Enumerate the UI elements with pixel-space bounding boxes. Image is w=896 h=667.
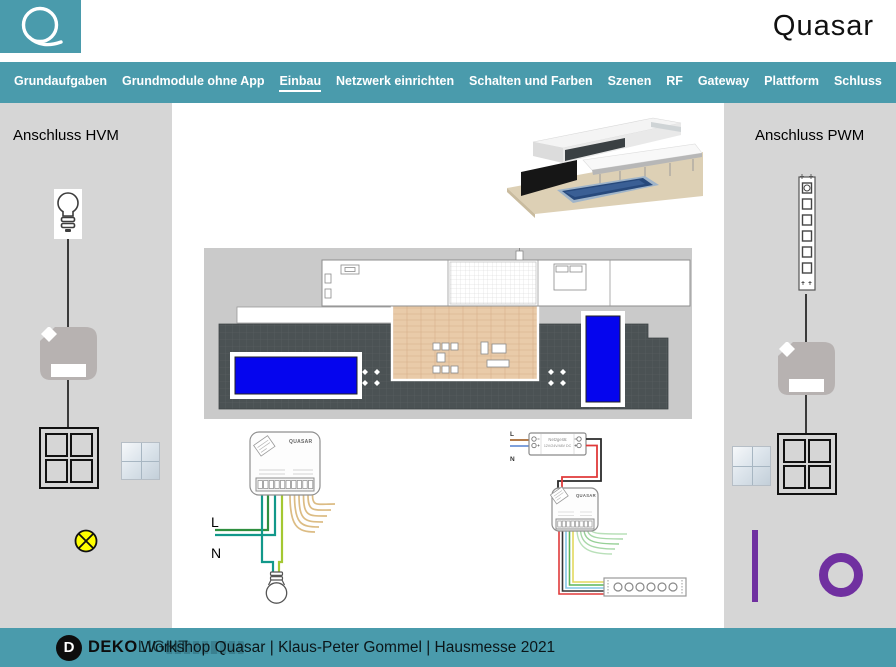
- footer-caption: Workshop Quasar | Klaus-Peter Gommel | H…: [0, 628, 696, 667]
- switch-photo-icon: [121, 442, 160, 480]
- switch-photo-icon: [732, 446, 771, 486]
- bulb-symbol-icon: [266, 572, 286, 603]
- psu-label-2: 12V/24V/48V DC: [544, 444, 572, 448]
- left-panel-anschluss-hvm: Anschluss HVM: [0, 103, 172, 628]
- wire-module-to-switch: [67, 380, 69, 427]
- purple-ring-shape: [819, 553, 863, 597]
- wire-bulb-to-module: [67, 239, 69, 329]
- lamp-symbol-icon: [74, 529, 98, 553]
- nav-item-schalten-und-farben[interactable]: Schalten und Farben: [469, 74, 593, 92]
- nav-item-einbau[interactable]: Einbau: [279, 74, 321, 92]
- nav-item-plattform[interactable]: Plattform: [764, 74, 819, 92]
- slide: Quasar GrundaufgabenGrundmodule ohne App…: [0, 0, 896, 667]
- brand-wordmark: Quasar: [773, 10, 874, 43]
- right-panel-title: Anschluss PWM: [755, 127, 864, 144]
- switch-grid-icon: [777, 433, 837, 495]
- nav-item-grundaufgaben[interactable]: Grundaufgaben: [14, 74, 107, 92]
- wiring-diagram-pwm: L N Netzgerät 12V/24V/48V DC: [508, 424, 693, 620]
- led-strip-symbol-icon: [604, 578, 686, 596]
- wire-strip-to-module: [805, 294, 807, 342]
- floor-plan-image: [204, 248, 692, 419]
- label-n: N: [510, 456, 515, 463]
- module-label: QUASAR: [289, 439, 313, 445]
- bulb-icon: [54, 189, 82, 239]
- right-panel-anschluss-pwm: Anschluss PWM: [724, 103, 896, 628]
- nav-item-grundmodule-ohne-app[interactable]: Grundmodule ohne App: [122, 74, 265, 92]
- module-icon: [40, 327, 97, 380]
- q-logo-icon: [0, 0, 81, 53]
- nav-item-schluss[interactable]: Schluss: [834, 74, 882, 92]
- psu-label-1: Netzgerät: [548, 437, 567, 442]
- module-label: QUASAR: [576, 493, 596, 498]
- wiring-diagram-hvm: L N QUASAR: [205, 424, 375, 620]
- nav-item-netzwerk-einrichten[interactable]: Netzwerk einrichten: [336, 74, 454, 92]
- quasar-logo-tile: [0, 0, 81, 53]
- led-strip-icon: [798, 173, 816, 294]
- wire-module-to-switch: [805, 395, 807, 433]
- switch-grid-icon: [39, 427, 99, 489]
- nav-item-rf[interactable]: RF: [666, 74, 683, 92]
- purple-bar-shape: [752, 530, 758, 602]
- left-panel-title: Anschluss HVM: [13, 127, 119, 144]
- label-l: L: [211, 514, 219, 530]
- footer-bar: D DEKOLIGHT Workshop Quasar | Klaus-Pete…: [0, 628, 896, 667]
- building-render-image: [505, 108, 705, 226]
- nav-bar: GrundaufgabenGrundmodule ohne AppEinbauN…: [0, 62, 896, 103]
- nav-item-gateway[interactable]: Gateway: [698, 74, 749, 92]
- nav-item-szenen[interactable]: Szenen: [608, 74, 652, 92]
- label-n: N: [211, 545, 221, 561]
- module-icon: [778, 342, 835, 395]
- label-l: L: [510, 431, 514, 438]
